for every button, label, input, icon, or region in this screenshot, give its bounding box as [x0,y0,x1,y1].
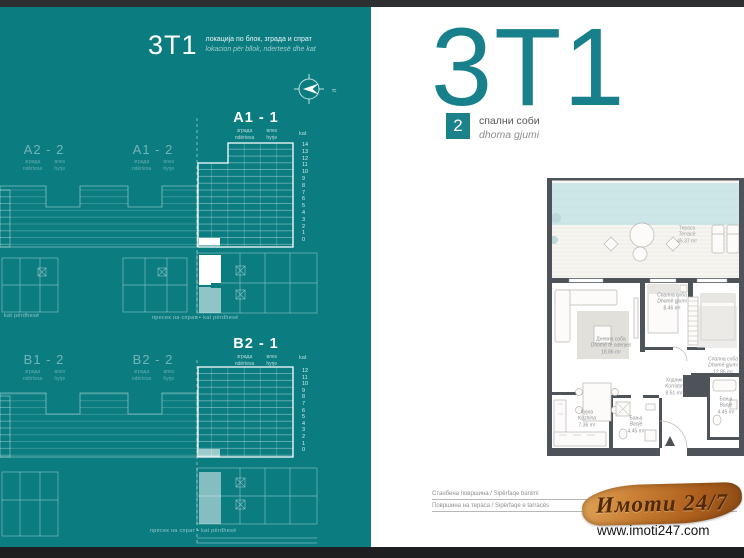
floor-number: 12 [302,156,308,163]
unit-code-small: 3T1 [148,32,198,59]
floor-number: 1 [302,230,308,237]
caption-section-row2: пресек на спрат ▪ kat përdhesë [150,528,237,534]
room-label: Бања Banjë 4.45 m² [628,416,645,435]
unit-label-b2-2: B2 - 2 зградаndërtesa влезhyrje [132,352,174,382]
floor-number: 5 [302,203,308,210]
watermark-url: www.imoti247.com [597,523,710,538]
floor-number: 5 [302,414,308,421]
unit-label-b1-2: B1 - 2 зградаndërtesa влезhyrje [23,352,65,382]
floor-number: 0 [302,237,308,244]
floor-number: 14 [302,142,308,149]
unit-label-a1-2: A1 - 2 зградаndërtesa влезhyrje [132,142,174,172]
elevation-b-row [0,393,197,457]
svg-text:≈: ≈ [332,86,337,95]
imoti247-watermark: Имоти 24/7 [582,482,743,526]
unit-label-a1-1-highlighted: A1 - 1 зградаndërtesa влезhyrje [233,110,279,141]
floor-numbers-a1-1: 14131211109876543210 [302,142,308,244]
bedrooms-label-mk: спални соби [479,114,540,128]
bedroom-count-box: 2 [446,113,470,139]
room-labels: Тераса Terracë 45.37 m² Дневна соба Dhom… [547,178,744,458]
floor-number: 12 [302,368,308,375]
floor-number: 13 [302,149,308,156]
location-subtitle-sq: lokacion për bllok, ndertesë dhe kat [206,45,316,55]
apartment-floorplan: Тераса Terracë 45.37 m² Дневна соба Dhom… [547,178,744,458]
floor-number: 8 [302,183,308,190]
floor-number: 10 [302,381,308,388]
room-label: Дневна соба Dhomë të ndenjes 18.86 m² [591,337,632,356]
location-header: 3T1 локација по блок, зграда и спрат lok… [148,32,316,59]
caption-section-row1: пресек на спрат ▪ kat përdhesë [152,315,239,321]
floor-number: 2 [302,434,308,441]
room-label: Спална соба Dhomë gjumi 8.46 m² [657,293,687,312]
highlighted-floor-cell-a1-1 [199,238,220,246]
floor-number: 6 [302,196,308,203]
floor-number: 1 [302,441,308,448]
bedrooms-label-sq: dhoma gjumi [479,128,540,142]
floor-number: 6 [302,408,308,415]
floor-number: 4 [302,421,308,428]
bedrooms-badge: 2 спални соби dhoma gjumi [446,113,540,142]
elevation-a-row [0,186,197,247]
floorplan-mini-row1 [2,253,317,313]
floor-number: 7 [302,190,308,197]
location-subtitle: локација по блок, зграда и спрат lokacio… [206,35,316,59]
unit-code-large: 3T1 [431,16,627,121]
page: 3T1 локација по блок, зграда и спрат lok… [0,0,744,558]
unit-label-b2-1-highlighted: B2 - 1 зградаndërtesa влезhyrje [233,336,279,367]
floor-number: 9 [302,176,308,183]
kat-label-b: kat [299,355,306,361]
room-label: Тераса Terracë 45.37 m² [677,226,697,245]
floor-number: 2 [302,224,308,231]
elevation-a1-1-highlight [198,143,293,247]
floor-number: 3 [302,217,308,224]
floor-number: 10 [302,169,308,176]
floor-number: 7 [302,401,308,408]
location-subtitle-mk: локација по блок, зграда и спрат [206,35,316,45]
unit-label-a2-2: A2 - 2 зградаndërtesa влезhyrje [23,142,65,172]
highlighted-unit-gray-b [199,472,221,524]
highlighted-unit-white [199,255,221,285]
floor-number: 11 [302,162,308,169]
room-label: Бања Banjë 4.45 m² [718,397,735,416]
caption-ground-floor: kat përdhesë [4,313,39,319]
room-label: Кујна Kuzhina 7.36 m² [578,410,596,429]
floor-number: 11 [302,375,308,382]
compass-icon: ≈ [292,72,348,112]
watermark-brand: Имоти 24/7 [595,489,728,518]
floor-number: 9 [302,388,308,395]
elevation-b2-1-highlight [198,367,293,457]
room-label: Спална соба Dhomë gjumi 12.86 m² [708,357,738,376]
highlighted-floor-cell-b2-1 [199,449,220,457]
highlighted-unit-gray [199,287,221,313]
floor-number: 3 [302,427,308,434]
unit-notch [211,283,221,288]
kat-label-a: kat [299,131,306,137]
floor-number: 0 [302,447,308,454]
floor-numbers-b2-1: 1211109876543210 [302,368,308,454]
floor-number: 4 [302,210,308,217]
room-label: Ходник Korridor 8.61 m² [665,378,683,397]
floor-number: 8 [302,394,308,401]
